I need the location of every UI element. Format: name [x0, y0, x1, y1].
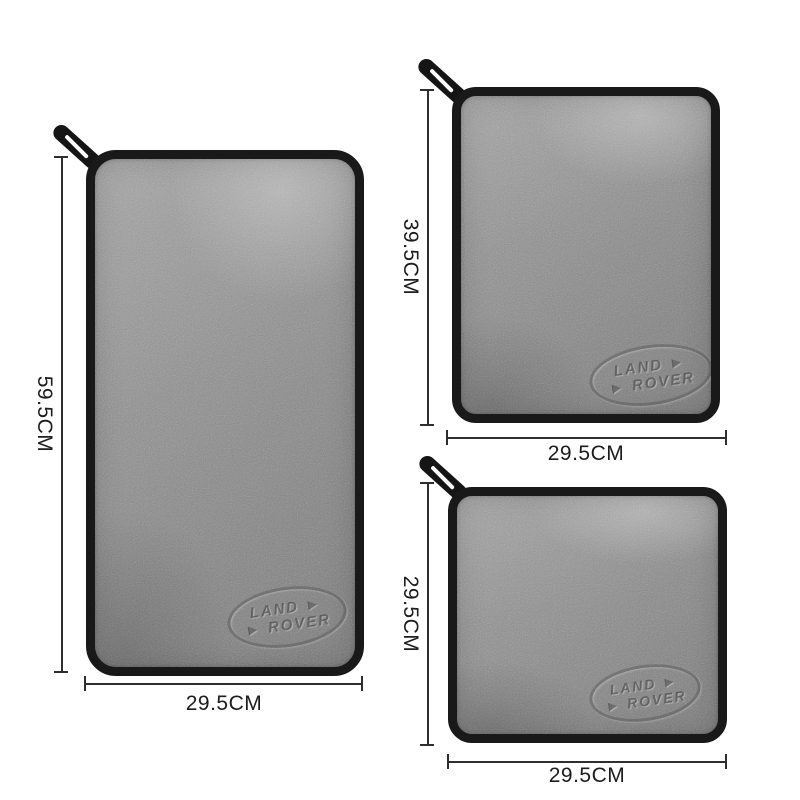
width-dimension-line — [85, 683, 363, 685]
dimension-tick — [54, 156, 68, 158]
towel-large: LAND ► ► ROVER — [86, 150, 364, 676]
product-image: LAND ► ► ROVER 59.5CM 29.5CM LAND ► ► RO… — [0, 0, 800, 800]
towel-small: LAND ► ► ROVER — [448, 487, 727, 743]
width-dimension-line — [447, 437, 727, 439]
dimension-tick — [447, 754, 449, 769]
height-dimension-line — [427, 90, 429, 425]
width-label: 29.5CM — [541, 442, 631, 466]
width-label: 29.5CM — [179, 692, 269, 716]
height-label: 29.5CM — [398, 575, 422, 653]
dimension-tick — [361, 676, 363, 691]
height-label: 39.5CM — [398, 218, 422, 296]
dimension-tick — [420, 744, 434, 746]
dimension-tick — [420, 89, 434, 91]
dimension-tick — [420, 424, 434, 426]
dimension-tick — [725, 754, 727, 769]
dimension-tick — [420, 482, 434, 484]
width-dimension-line — [448, 761, 727, 763]
dimension-tick — [84, 676, 86, 691]
width-label: 29.5CM — [542, 764, 632, 788]
height-label: 59.5CM — [32, 375, 56, 453]
dimension-tick — [54, 671, 68, 673]
dimension-tick — [725, 430, 727, 445]
loop-slit — [430, 465, 455, 490]
dimension-tick — [446, 430, 448, 445]
height-dimension-line — [61, 157, 63, 672]
towel-medium: LAND ► ► ROVER — [452, 87, 720, 423]
height-dimension-line — [427, 483, 429, 745]
